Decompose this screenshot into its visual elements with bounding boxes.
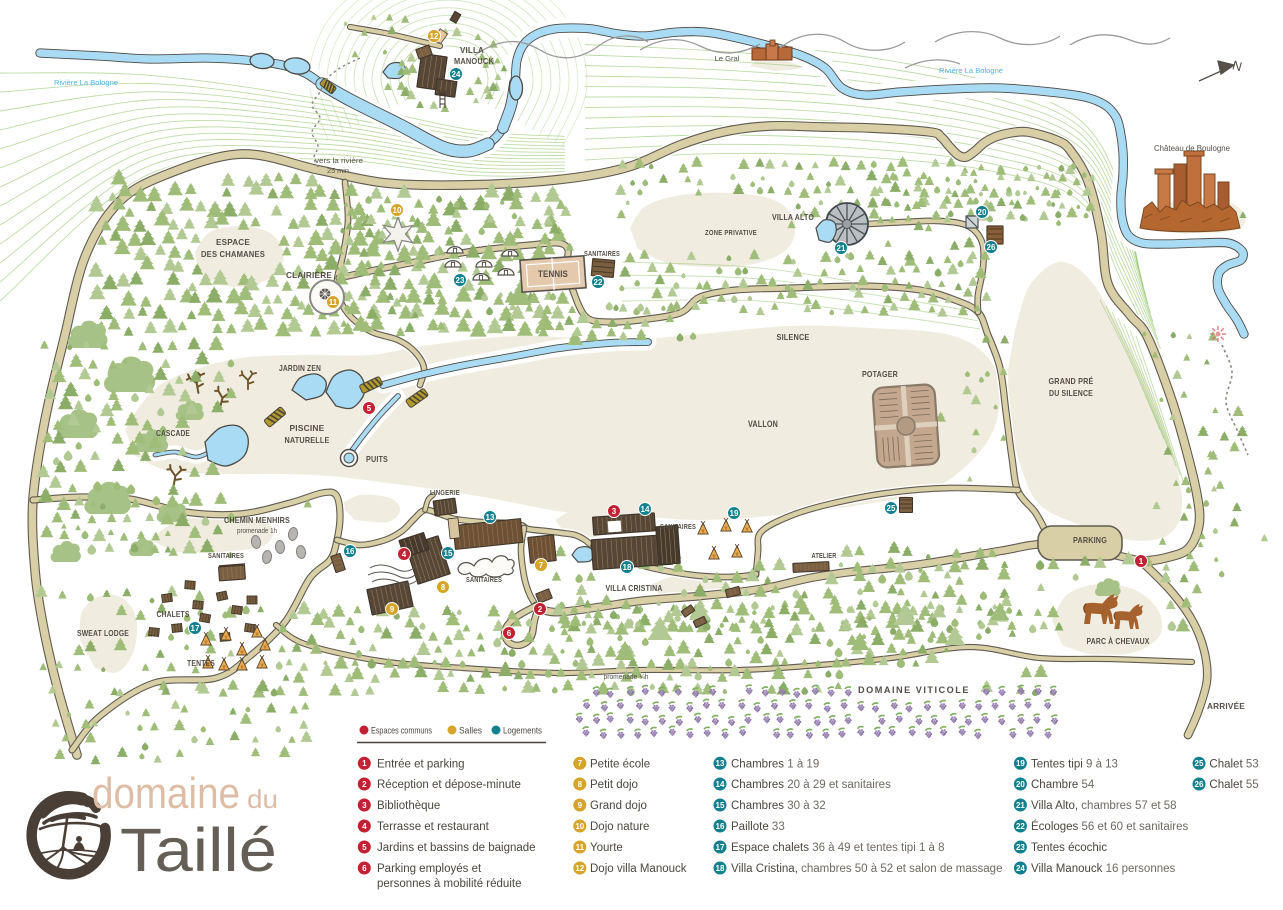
svg-text:18: 18 xyxy=(716,864,725,873)
svg-text:3: 3 xyxy=(362,801,367,810)
svg-text:DU SILENCE: DU SILENCE xyxy=(1049,388,1093,398)
svg-text:ZONE PRIVATIVE: ZONE PRIVATIVE xyxy=(705,230,757,237)
svg-text:19: 19 xyxy=(1016,759,1025,768)
svg-text:ESPACE: ESPACE xyxy=(216,237,250,247)
svg-text:15: 15 xyxy=(444,549,453,558)
svg-text:SWEAT LODGE: SWEAT LODGE xyxy=(77,628,129,638)
svg-text:12: 12 xyxy=(430,32,439,41)
svg-text:7: 7 xyxy=(578,759,583,768)
svg-text:5: 5 xyxy=(362,843,367,852)
svg-text:NATURELLE: NATURELLE xyxy=(285,435,330,445)
svg-text:CLAIRIÈRE: CLAIRIÈRE xyxy=(286,270,332,280)
svg-text:25 min.: 25 min. xyxy=(327,168,351,175)
svg-text:CASCADE: CASCADE xyxy=(156,428,190,438)
svg-text:22: 22 xyxy=(1016,822,1025,831)
svg-text:23: 23 xyxy=(1016,843,1025,852)
svg-text:VILLA: VILLA xyxy=(460,46,484,55)
svg-text:SANITAIRES: SANITAIRES xyxy=(466,577,502,584)
svg-text:11: 11 xyxy=(576,843,585,852)
svg-text:Bibliothèque: Bibliothèque xyxy=(377,800,440,812)
svg-text:TENNIS: TENNIS xyxy=(538,269,568,279)
svg-text:18: 18 xyxy=(623,563,632,572)
svg-text:Écologes 56 et 60 et sanitaire: Écologes 56 et 60 et sanitaires xyxy=(1031,820,1189,833)
svg-text:17: 17 xyxy=(191,624,200,633)
svg-text:ARRIVÉE: ARRIVÉE xyxy=(1207,702,1245,711)
svg-text:7: 7 xyxy=(539,561,544,570)
svg-text:POTAGER: POTAGER xyxy=(862,369,898,379)
svg-text:26: 26 xyxy=(1195,780,1204,789)
svg-text:Jardins et bassins de baignade: Jardins et bassins de baignade xyxy=(377,842,536,854)
svg-text:2: 2 xyxy=(362,780,367,789)
svg-text:13: 13 xyxy=(716,759,725,768)
svg-text:DOMAINE VITICOLE: DOMAINE VITICOLE xyxy=(858,685,970,695)
svg-text:4: 4 xyxy=(362,822,367,831)
svg-text:personnes à mobilité réduite: personnes à mobilité réduite xyxy=(377,878,521,890)
svg-text:vers la rivière: vers la rivière xyxy=(315,158,363,165)
svg-text:Chambres 1 à 19: Chambres 1 à 19 xyxy=(731,758,819,770)
svg-text:Petit dojo: Petit dojo xyxy=(590,779,638,791)
svg-text:17: 17 xyxy=(716,843,725,852)
svg-text:Tentes tipi 9 à 13: Tentes tipi 9 à 13 xyxy=(1031,758,1118,770)
svg-text:1: 1 xyxy=(1139,557,1144,566)
svg-text:Espaces communs: Espaces communs xyxy=(371,726,432,737)
svg-text:Petite école: Petite école xyxy=(590,758,650,770)
svg-text:Villa Manouck 16 personnes: Villa Manouck 16 personnes xyxy=(1031,863,1176,875)
svg-text:10: 10 xyxy=(575,822,584,831)
svg-text:20: 20 xyxy=(1016,780,1025,789)
svg-text:14: 14 xyxy=(716,780,725,789)
svg-text:SANITAIRES: SANITAIRES xyxy=(584,251,620,258)
svg-text:SANITAIRES: SANITAIRES xyxy=(208,553,244,560)
svg-text:Paillote 33: Paillote 33 xyxy=(731,821,785,833)
svg-text:1: 1 xyxy=(362,759,367,768)
svg-text:6: 6 xyxy=(362,864,367,873)
svg-text:24: 24 xyxy=(1016,864,1025,873)
svg-text:25: 25 xyxy=(887,504,896,513)
svg-text:3: 3 xyxy=(612,507,617,516)
svg-text:5: 5 xyxy=(367,404,372,413)
svg-text:11: 11 xyxy=(329,298,338,307)
svg-text:10: 10 xyxy=(393,206,402,215)
svg-text:VILLA ALTO: VILLA ALTO xyxy=(772,212,814,222)
svg-text:Parking employés et: Parking employés et xyxy=(377,863,482,875)
svg-text:DES CHAMANES: DES CHAMANES xyxy=(201,249,265,259)
svg-text:Grand dojo: Grand dojo xyxy=(590,800,647,812)
svg-text:2: 2 xyxy=(538,605,543,614)
svg-text:TENTES: TENTES xyxy=(187,658,215,668)
svg-text:20: 20 xyxy=(978,208,987,217)
svg-text:24: 24 xyxy=(452,70,461,79)
svg-text:Terrasse et restaurant: Terrasse et restaurant xyxy=(377,821,490,833)
svg-text:du: du xyxy=(247,784,278,814)
svg-text:ATELIER: ATELIER xyxy=(812,553,837,560)
svg-text:PISCINE: PISCINE xyxy=(290,423,325,433)
svg-text:22: 22 xyxy=(594,278,603,287)
svg-text:12: 12 xyxy=(575,864,584,873)
svg-text:Dojo nature: Dojo nature xyxy=(590,821,649,833)
svg-text:Logements: Logements xyxy=(503,726,542,737)
svg-text:19: 19 xyxy=(730,509,739,518)
svg-text:Chambre 54: Chambre 54 xyxy=(1031,779,1095,791)
svg-text:13: 13 xyxy=(486,513,495,522)
svg-text:15: 15 xyxy=(716,801,725,810)
svg-text:Réception et dépose-minute: Réception et dépose-minute xyxy=(377,779,521,791)
svg-text:Chalet 55: Chalet 55 xyxy=(1209,779,1258,791)
svg-text:9: 9 xyxy=(578,801,583,810)
svg-text:CHEMIN MENHIRS: CHEMIN MENHIRS xyxy=(224,515,290,525)
svg-text:Salles: Salles xyxy=(459,726,482,737)
svg-text:domaine: domaine xyxy=(92,769,240,818)
svg-text:Tentes écochic: Tentes écochic xyxy=(1031,842,1107,854)
svg-text:Rivière La Bologne: Rivière La Bologne xyxy=(939,66,1003,75)
svg-text:Dojo villa Manouck: Dojo villa Manouck xyxy=(590,863,687,875)
svg-text:23: 23 xyxy=(456,276,465,285)
svg-text:8: 8 xyxy=(578,780,583,789)
svg-text:SILENCE: SILENCE xyxy=(777,332,810,342)
svg-text:8: 8 xyxy=(441,583,446,592)
svg-text:16: 16 xyxy=(716,822,725,831)
svg-text:21: 21 xyxy=(837,244,846,253)
svg-text:Chambres 20 à 29 et sanitaires: Chambres 20 à 29 et sanitaires xyxy=(731,779,891,791)
svg-text:4: 4 xyxy=(402,550,407,559)
svg-text:VILLA CRISTINA: VILLA CRISTINA xyxy=(606,583,663,593)
svg-text:GRAND PRÉ: GRAND PRÉ xyxy=(1049,376,1094,386)
svg-text:Taillé: Taillé xyxy=(120,816,277,884)
svg-text:Entrée et parking: Entrée et parking xyxy=(377,758,465,770)
svg-text:Villa Alto, chambres 57 et 58: Villa Alto, chambres 57 et 58 xyxy=(1031,800,1177,812)
svg-text:16: 16 xyxy=(346,547,355,556)
svg-text:Chalet 53: Chalet 53 xyxy=(1209,758,1258,770)
svg-text:JARDIN ZEN: JARDIN ZEN xyxy=(279,363,321,373)
svg-text:14: 14 xyxy=(641,505,650,514)
svg-text:Espace chalets 36 à 49 et tent: Espace chalets 36 à 49 et tentes tipi 1 … xyxy=(731,842,945,854)
svg-text:Chambres 30 à 32: Chambres 30 à 32 xyxy=(731,800,826,812)
svg-text:Villa Cristina, chambres 50 à: Villa Cristina, chambres 50 à 52 et salo… xyxy=(731,863,1002,875)
svg-text:Le Gral: Le Gral xyxy=(715,54,740,63)
svg-text:6: 6 xyxy=(507,629,512,638)
svg-text:promenade ¼h: promenade ¼h xyxy=(604,674,649,681)
svg-text:Yourte: Yourte xyxy=(590,842,623,854)
svg-text:CHALETS: CHALETS xyxy=(157,609,190,619)
svg-text:PUITS: PUITS xyxy=(366,454,388,464)
svg-text:PARC À CHEVAUX: PARC À CHEVAUX xyxy=(1087,637,1150,646)
svg-text:PARKING: PARKING xyxy=(1073,535,1107,545)
svg-text:LINGERIE: LINGERIE xyxy=(430,490,460,497)
svg-text:promenade 1h: promenade 1h xyxy=(237,526,277,535)
svg-text:9: 9 xyxy=(390,605,395,614)
svg-text:Château de Boulogne: Château de Boulogne xyxy=(1154,144,1231,153)
svg-text:SANITAIRES: SANITAIRES xyxy=(660,524,696,531)
svg-text:21: 21 xyxy=(1016,801,1025,810)
svg-text:26: 26 xyxy=(987,243,996,252)
svg-text:VALLON: VALLON xyxy=(748,419,778,429)
svg-text:MANOUCK: MANOUCK xyxy=(454,57,494,66)
svg-text:25: 25 xyxy=(1195,759,1204,768)
svg-text:Rivière La Bologne: Rivière La Bologne xyxy=(54,78,118,87)
